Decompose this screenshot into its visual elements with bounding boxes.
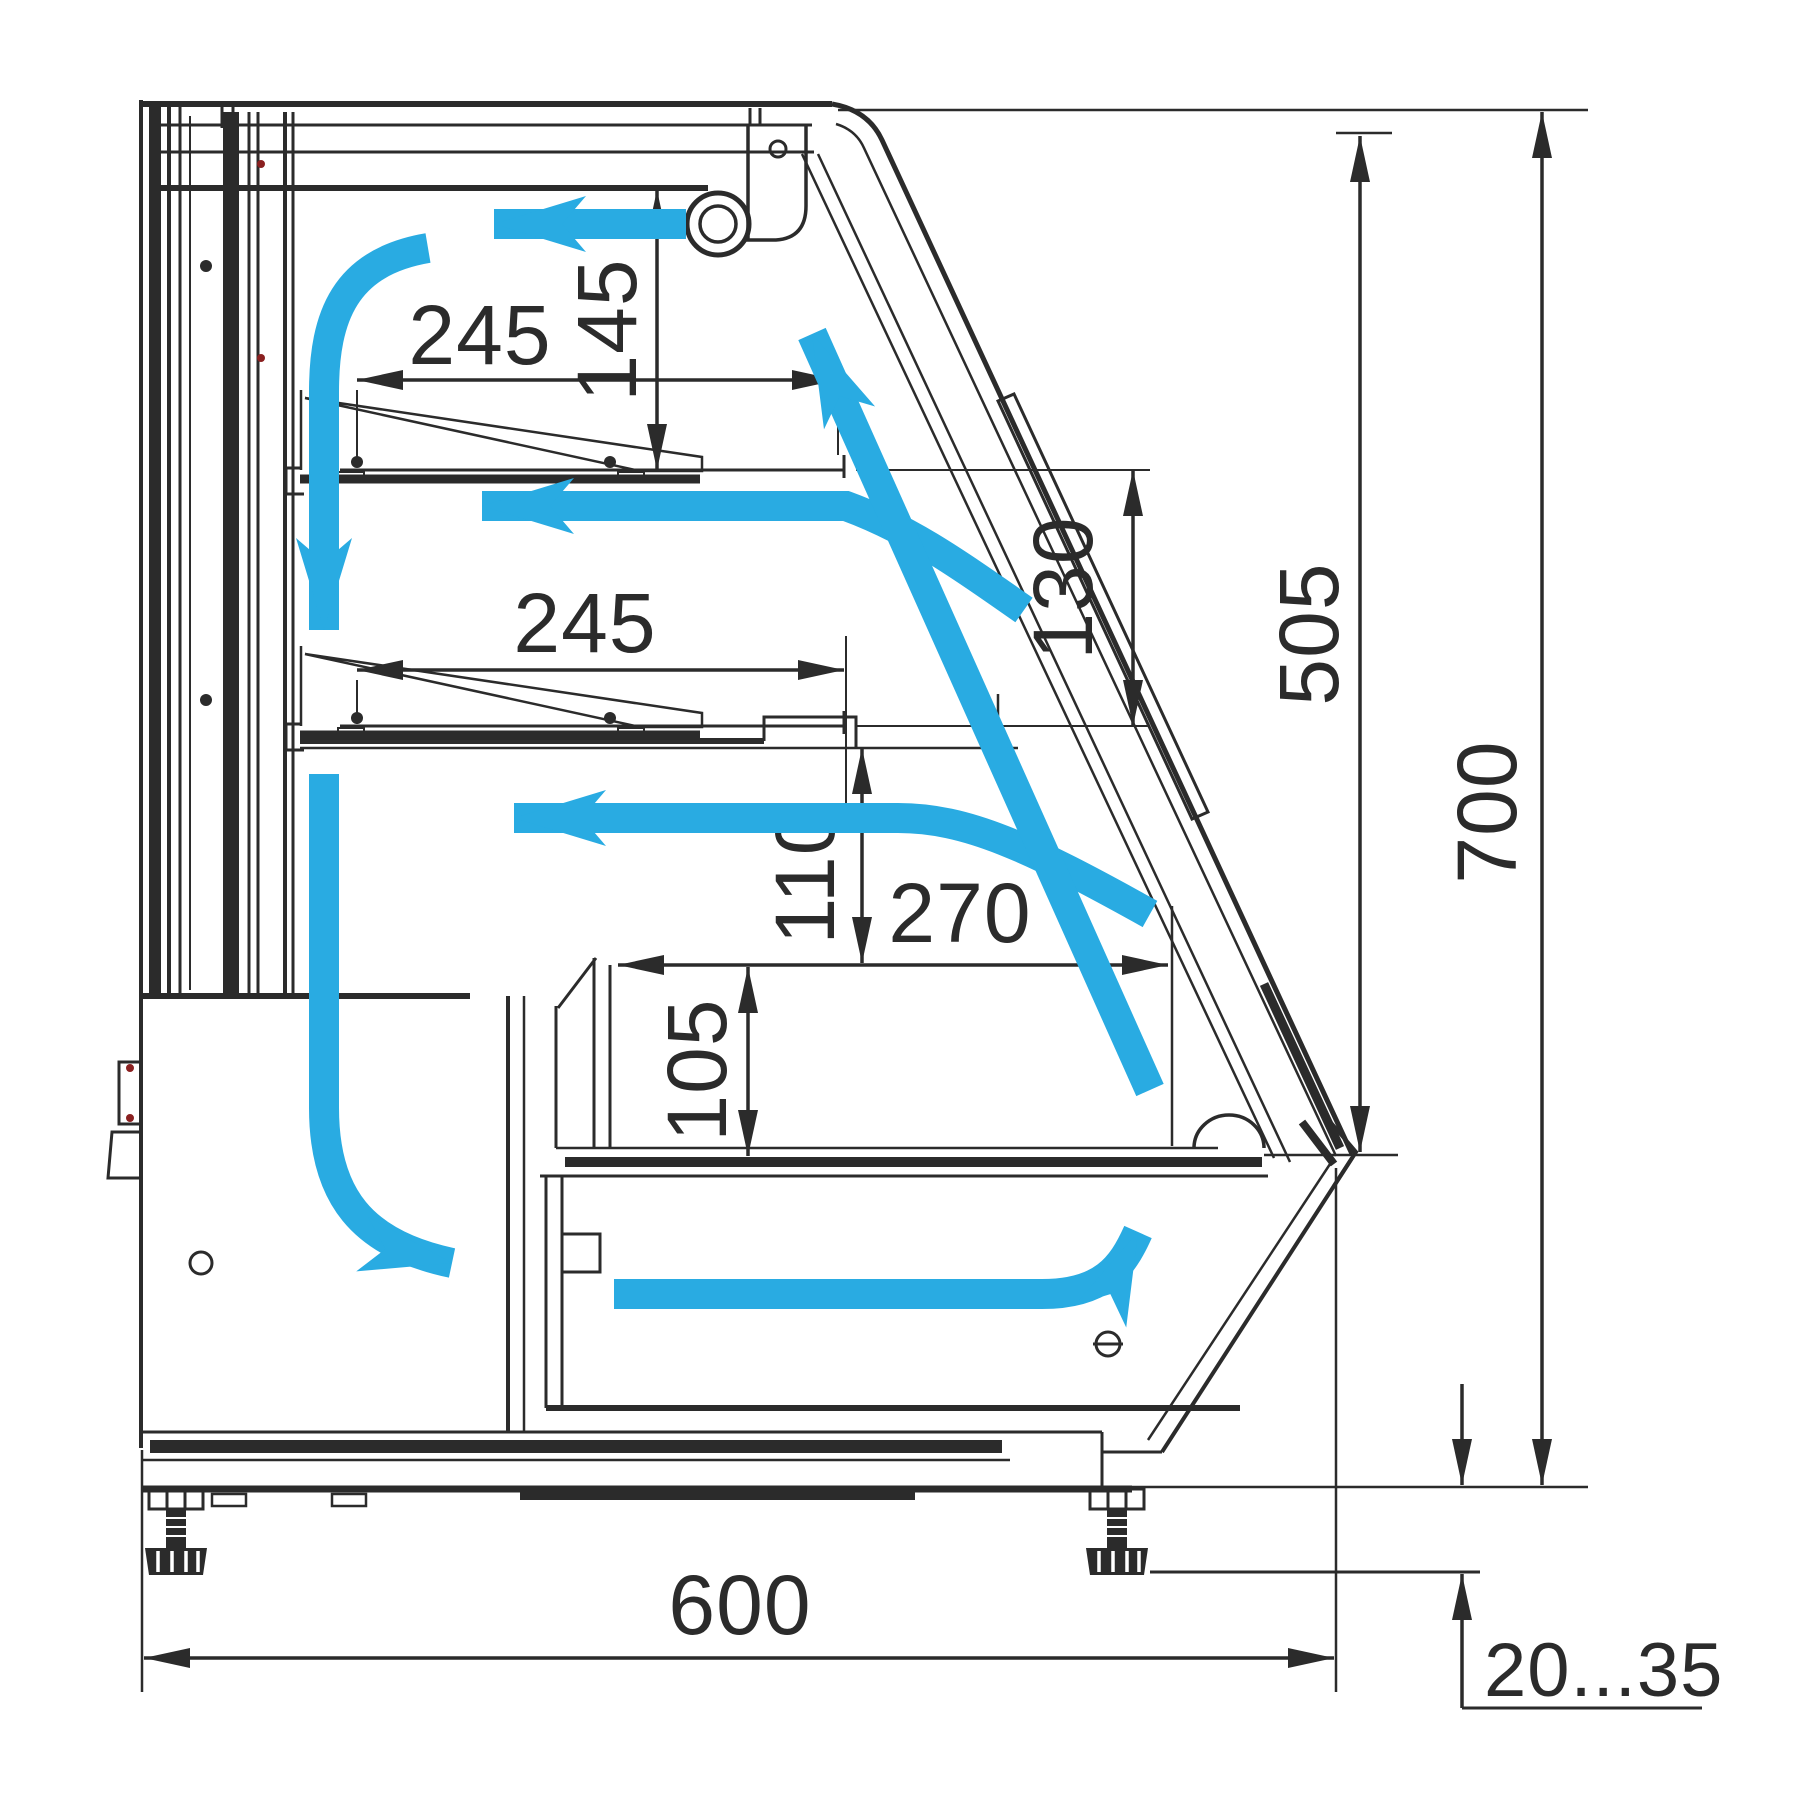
sensor-dot-icon (257, 160, 265, 168)
dim-label-505: 505 (1262, 562, 1356, 705)
door-handle (108, 1132, 141, 1178)
lower-duct (546, 1158, 1352, 1488)
air-outlet-hump (1194, 1115, 1264, 1148)
airflow-arrow-glass-rise (812, 334, 1150, 1090)
cross-section-drawing: 245 145 245 130 505 700 110 270 105 600 … (0, 0, 1800, 1813)
vent-hole-icon (190, 1252, 212, 1274)
dim-label-700: 700 (1440, 740, 1534, 883)
dim-label-270: 270 (888, 866, 1031, 960)
fan-icon (687, 193, 749, 255)
dim-label-600: 600 (668, 1558, 811, 1652)
shelf-top (286, 390, 844, 494)
adjustable-foot-left (145, 1489, 207, 1575)
hinge-pin-icon (770, 141, 786, 157)
dim-label-245-mid: 245 (513, 576, 656, 670)
sensor-dot-icon (257, 354, 265, 362)
technical-drawing-page: 245 145 245 130 505 700 110 270 105 600 … (0, 0, 1800, 1813)
base-plinth (141, 1432, 1132, 1506)
dim-label-leg-range: 20...35 (1484, 1628, 1723, 1713)
screw-icon (200, 694, 212, 706)
dim-label-145: 145 (560, 258, 654, 401)
dim-label-105: 105 (650, 998, 744, 1141)
airflow-arrow-back-duct-lower (324, 774, 452, 1263)
adjustable-foot-right (1086, 1489, 1148, 1575)
top-canopy (140, 104, 832, 240)
counter-plate (540, 1162, 1268, 1176)
dim-label-245-top: 245 (408, 288, 551, 382)
display-deck (300, 694, 1018, 748)
screw-icon (200, 260, 212, 272)
airflow-arrow-return-duct (614, 1232, 1138, 1294)
dimensions: 245 145 245 130 505 700 110 270 105 600 … (142, 110, 1723, 1713)
back-wall-profile (141, 100, 293, 1448)
dim-label-130: 130 (1016, 516, 1110, 659)
